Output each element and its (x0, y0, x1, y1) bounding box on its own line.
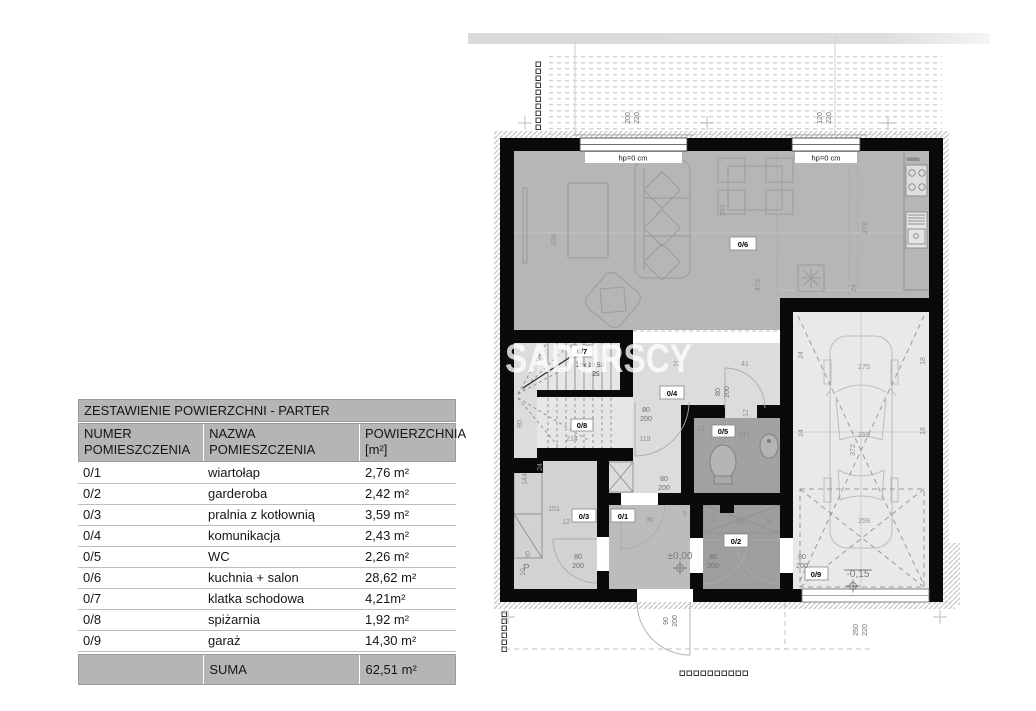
dim-label: 90 (525, 551, 532, 559)
dim-label: 275 (858, 364, 870, 371)
room-label-08: 0/8 (571, 419, 593, 431)
door-dim: 80 (798, 554, 806, 561)
cell-name: garaż (203, 631, 360, 651)
dim-label: 144 (522, 473, 529, 485)
dim-label: 65 (766, 517, 773, 525)
window-dim: 220 (826, 112, 833, 124)
room-label-04: 0/4 (660, 386, 684, 399)
cell-area: 3,59 m² (360, 505, 456, 525)
cell-number: 0/3 (78, 505, 203, 525)
room-label-02: 0/2 (724, 534, 748, 547)
table-row: 0/2 garderoba 2,42 m² (78, 484, 456, 505)
dim-label: 18 (920, 357, 927, 365)
cell-area: 2,76 m² (360, 463, 456, 483)
table-row: 0/8 spiżarnia 1,92 m² (78, 610, 456, 631)
door-dim: 80 (715, 388, 722, 396)
dim-label: 18 (920, 427, 927, 435)
dim-label: 259 (858, 432, 870, 439)
door-dim: 200 (640, 416, 652, 423)
door-dim: 80 (709, 554, 717, 561)
wash-basin (760, 434, 778, 458)
cell-area: 28,62 m² (360, 568, 456, 588)
cell-number: 0/2 (78, 484, 203, 504)
cell-name: klatka schodowa (203, 589, 360, 609)
level-garage: -0,15 (847, 569, 870, 580)
dim-label: 12 (708, 516, 716, 523)
cell-area: 2,42 m² (360, 484, 456, 504)
table-row: 0/9 garaż 14,30 m² (78, 631, 456, 652)
dim-label: 259 (858, 518, 870, 525)
cell-name: spiżarnia (203, 610, 360, 630)
areas-table: ZESTAWIENIE POWIERZCHNI - PARTER NUMER P… (78, 399, 456, 685)
door-dim: 200 (796, 563, 808, 570)
cell-area: 1,92 m² (360, 610, 456, 630)
door-dim: 80 (574, 554, 582, 561)
table-row: 0/1 wiartołap 2,76 m² (78, 463, 456, 484)
header-line: POMIESZCZENIA (84, 442, 190, 457)
cell-number: 0/1 (78, 463, 203, 483)
entry-door-opening (637, 589, 693, 602)
room-label-text: 0/4 (667, 389, 678, 398)
hp-label-1: hp=0 cm (619, 154, 648, 163)
header-line: [m²] (365, 442, 387, 457)
plot-dashed-lines (505, 603, 870, 649)
room-label-text: 0/8 (577, 421, 587, 430)
table-row: 0/4 komunikacja 2,43 m² (78, 526, 456, 547)
room-label-09: 0/9 (805, 567, 828, 580)
dim-label: 24 (537, 463, 544, 471)
window-dim: 200 (625, 112, 632, 124)
cell-name: kuchnia + salon (203, 568, 360, 588)
header-line: NUMER (84, 426, 132, 441)
level-zero: ±0,00 (668, 551, 693, 562)
header-nazwa: NAZWA POMIESZCZENIA (203, 424, 359, 461)
door-dim: 200 (707, 563, 719, 570)
garage-door-dim: 250 (853, 624, 860, 636)
dim-label: 41 (741, 361, 749, 368)
kitchen-sink (906, 212, 927, 248)
room-label-05: 0/5 (712, 425, 735, 437)
header-line: NAZWA (209, 426, 255, 441)
cell-area: 2,43 m² (360, 526, 456, 546)
suma-value: 62,51 m² (359, 655, 455, 684)
room-label-text: 0/6 (738, 240, 748, 249)
dim-label: 141 (738, 432, 750, 439)
entry-door-dim: 200 (672, 615, 679, 627)
cell-number: 0/5 (78, 547, 203, 567)
dim-label: 24 (798, 429, 805, 437)
dim-label: 372 (850, 444, 857, 456)
cell-number: 0/7 (78, 589, 203, 609)
floor-plan-svg: 0/6 0/7 0/8 0/4 0/5 0/3 (468, 0, 1036, 711)
cell-name: WC (203, 547, 360, 567)
dim-label: 5 (683, 511, 687, 518)
room-label-text: 0/9 (811, 570, 821, 579)
door-dim: 80 (660, 476, 668, 483)
door-entry (637, 602, 690, 655)
window-dim: 220 (634, 112, 641, 124)
header-powierzchnia: POWIERZCHNIA [m²] (359, 424, 455, 461)
dim-label: 214 (566, 436, 578, 443)
door-dim: 200 (724, 386, 731, 398)
dim-label: 90 (517, 420, 524, 428)
header-line: POMIESZCZENIA (209, 442, 315, 457)
hp-label-2: hp=0 cm (812, 154, 841, 163)
door-dim: 200 (572, 563, 584, 570)
header-line: POWIERZCHNIA (365, 426, 466, 441)
dim-label: 12 (743, 409, 750, 417)
dim-label: 119 (639, 436, 650, 443)
dim-label: 24 (851, 284, 858, 292)
table-suma-row: SUMA 62,51 m² (78, 654, 456, 685)
table-header-row: NUMER POMIESZCZENIA NAZWA POMIESZCZENIA … (78, 423, 456, 462)
watermark: SADURSCY (505, 337, 692, 381)
cell-name: komunikacja (203, 526, 360, 546)
door-dim: 80 (642, 407, 650, 414)
dim-label: 90 (646, 517, 654, 524)
header-numer: NUMER POMIESZCZENIA (79, 424, 203, 461)
dim-label: 12 (697, 426, 705, 433)
room-label-03: 0/3 (572, 509, 596, 522)
dim-label: 473 (755, 279, 762, 291)
door-dim: 200 (658, 485, 670, 492)
window-dim: 120 (817, 112, 824, 124)
cell-area: 2,26 m² (360, 547, 456, 567)
suma-empty (79, 655, 203, 684)
room-label-01: 0/1 (611, 509, 635, 522)
room-label-06: 0/6 (730, 237, 756, 250)
cell-number: 0/4 (78, 526, 203, 546)
entry-door-dim: 90 (663, 617, 670, 625)
suma-label: SUMA (203, 655, 359, 684)
page: ZESTAWIENIE POWIERZCHNI - PARTER NUMER P… (0, 0, 1036, 711)
floor-plan: 0/6 0/7 0/8 0/4 0/5 0/3 (468, 0, 1036, 711)
dim-label: 150 (735, 519, 747, 526)
table-title: ZESTAWIENIE POWIERZCHNI - PARTER (78, 399, 456, 422)
room-label-text: 0/1 (618, 512, 628, 521)
dim-label: 291 (720, 204, 727, 216)
dim-label: 338 (551, 234, 558, 246)
table-row: 0/5 WC 2,26 m² (78, 547, 456, 568)
cell-area: 4,21m² (360, 589, 456, 609)
room-label-text: 0/5 (718, 427, 728, 436)
p-label: P (523, 563, 530, 574)
cell-number: 0/9 (78, 631, 203, 651)
terrace-area (468, 33, 990, 135)
toilet (710, 445, 736, 479)
garage-door-dim: 220 (862, 624, 869, 636)
room-label-text: 0/2 (731, 537, 741, 546)
dim-label: 12 (562, 519, 570, 526)
cell-number: 0/8 (78, 610, 203, 630)
table-row: 0/7 klatka schodowa 4,21m² (78, 589, 456, 610)
room-label-text: 0/3 (579, 512, 589, 521)
table-row: 0/6 kuchnia + salon 28,62 m² (78, 568, 456, 589)
cell-name: wiartołap (203, 463, 360, 483)
table-row: 0/3 pralnia z kotłownią 3,59 m² (78, 505, 456, 526)
dim-label: 24 (798, 351, 805, 359)
cell-name: pralnia z kotłownią (203, 505, 360, 525)
dim-label: 151 (548, 506, 560, 513)
cell-area: 14,30 m² (360, 631, 456, 651)
dim-label: 278 (862, 222, 869, 234)
cell-number: 0/6 (78, 568, 203, 588)
cell-name: garderoba (203, 484, 360, 504)
